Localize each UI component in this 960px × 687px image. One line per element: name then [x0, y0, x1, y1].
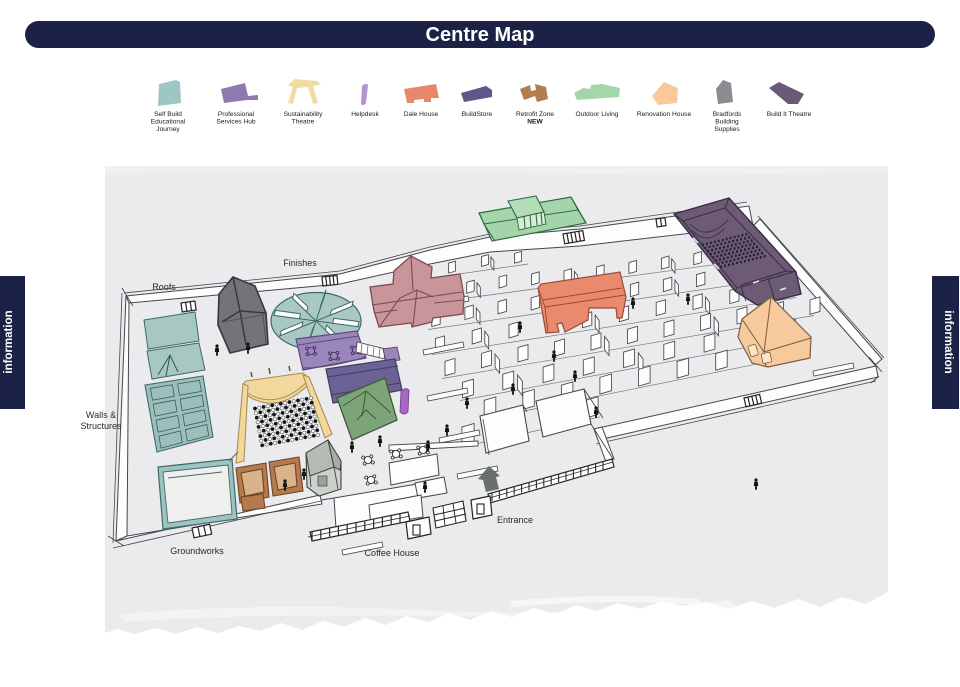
- svg-text:Entrance: Entrance: [497, 515, 533, 525]
- svg-text:Coffee House: Coffee House: [365, 548, 420, 558]
- svg-text:Professional: Professional: [218, 111, 255, 118]
- svg-text:Dale House: Dale House: [404, 111, 439, 118]
- svg-text:NEW: NEW: [527, 118, 543, 125]
- svg-text:Services Hub: Services Hub: [216, 118, 256, 125]
- svg-text:Educational: Educational: [151, 118, 186, 125]
- svg-text:Finishes: Finishes: [283, 258, 317, 268]
- svg-text:information: information: [3, 310, 15, 373]
- svg-text:Theatre: Theatre: [292, 118, 315, 125]
- svg-text:Centre Map: Centre Map: [426, 24, 535, 46]
- svg-text:Roofs: Roofs: [152, 282, 176, 292]
- svg-text:Build It Theatre: Build It Theatre: [767, 111, 812, 118]
- svg-text:Self Build: Self Build: [154, 111, 182, 118]
- svg-text:Walls &: Walls &: [86, 410, 116, 420]
- svg-text:Sustainability: Sustainability: [284, 111, 324, 118]
- svg-text:Helpdesk: Helpdesk: [351, 111, 379, 118]
- svg-text:Structures: Structures: [80, 421, 122, 431]
- svg-text:Bradfords: Bradfords: [713, 111, 742, 118]
- svg-text:Retrofit Zone: Retrofit Zone: [516, 111, 554, 118]
- svg-text:Renovation House: Renovation House: [637, 111, 692, 118]
- svg-text:BuildStore: BuildStore: [462, 111, 493, 118]
- svg-text:Building: Building: [715, 118, 739, 125]
- svg-text:Journey: Journey: [156, 126, 180, 133]
- svg-text:Outdoor Living: Outdoor Living: [576, 111, 619, 118]
- svg-text:information: information: [942, 310, 954, 373]
- svg-text:Groundworks: Groundworks: [170, 546, 224, 556]
- svg-text:Supplies: Supplies: [714, 126, 740, 133]
